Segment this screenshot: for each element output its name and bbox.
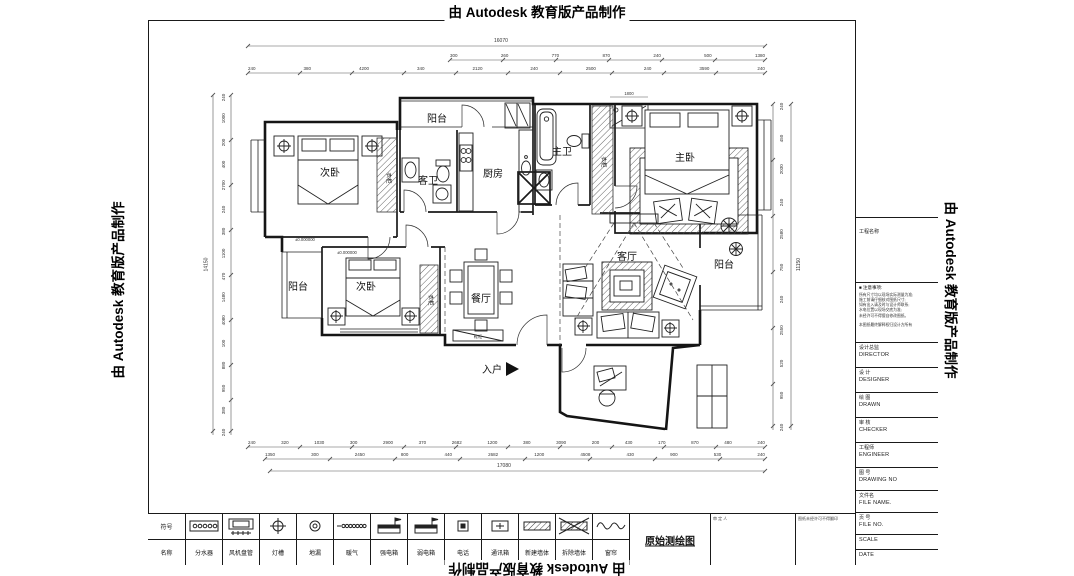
dim-value: 2682 [488,453,498,458]
coffee-table-icon [614,276,640,296]
dim-value: 1200 [534,453,544,458]
title-row-file-name: 文件名FILE NAME. [856,491,938,513]
legend-item: 窗帘 [593,514,630,565]
footer-note: 图纸未经许可不得翻印 [798,516,838,522]
dim-value: 240 [780,424,785,432]
dim-value: 3590 [699,67,709,72]
new-wall-icon [519,514,555,540]
room-label-kitchen: 厨房 [483,167,503,180]
dim-value: 770 [552,54,560,59]
shaft-cross-icon [518,172,550,204]
desk-icon [594,366,626,390]
notes-lines: 所有尺寸均以现场实际测量为准;施工前请仔细核对图纸尺寸;如有出入请及时与设计师联… [859,293,935,319]
dim-value: 240 [653,54,661,59]
outdoor-cabinet-icon [697,365,727,428]
bench-stool-icon [689,198,718,223]
dim-value: 450 [780,134,785,142]
project-name-cell: 工程名称 [856,218,938,283]
dim-value: 4080 [222,317,227,325]
note-line: 未经许可不得擅自修改图纸。 [859,314,935,319]
room-label-bedroom-top: 次卧 [320,166,340,179]
dim-value: 2900 [383,441,393,446]
power-box-icon [371,514,407,540]
wardrobe-label: 衣柜 [385,172,393,184]
autodesk-stamp-top: 由 Autodesk 教育版产品制作 [444,1,629,21]
dim-value: 880 [222,362,227,370]
room-label-balcony-top: 阳台 [427,112,447,125]
legend-item: 分水器 [186,514,223,565]
title-row-designer: 设 计DESIGNER [856,368,938,393]
dim-value: 2550 [780,327,785,335]
legend-item: 风机盘管 [223,514,260,565]
dim-value: 380 [523,441,531,446]
lamp-trough-icon [260,514,296,540]
footer-note-cell: 图纸未经许可不得翻印 [796,514,855,565]
dim-value: 320 [281,441,289,446]
room-label-balcony-left: 阳台 [288,280,308,293]
room-label-guest-bath: 客卫 [418,174,438,187]
autodesk-stamp-left: 由 Autodesk 教育版产品制作 [107,197,127,382]
dim-value: 1030 [314,441,324,446]
approver-cell: 审 定 人 [711,514,796,565]
nightstand-icon [402,308,419,325]
toilet-icon [567,134,589,148]
dim-value: 1000 [222,116,227,124]
dim-value: 1200 [487,441,497,446]
dim-value: 2682 [452,441,462,446]
legend-header-symbol: 符号 [148,514,185,540]
notes-footer: 本图纸最终解释权归设计方所有 [859,323,935,328]
dim-value: 1380 [755,54,765,59]
legend-item: 弱电箱 [408,514,445,565]
fridge-icon [505,103,530,128]
sofa-icon [597,312,659,338]
dim-value: 240 [780,102,785,110]
nightstand-icon [274,136,294,156]
legend-item: 电话 [445,514,482,565]
dim-value: 340 [417,67,425,72]
dim-row-bottom-1: 2403201030300290037026821200380309020043… [248,441,765,446]
dining-table-icon [450,249,512,331]
title-row-engineer: 工程师ENGINEER [856,443,938,468]
nightstand-icon [622,106,642,126]
radiator-icon [334,514,370,540]
dim-value: 3090 [556,441,566,446]
sheet-title-cell: 原始测绘图 [630,514,711,565]
dim-value: 4508 [580,453,590,458]
legend-item: 暖气 [334,514,371,565]
dim-value: 1480 [222,294,227,302]
room-label-entry: 入户 [482,363,502,376]
dim-row-top-3: 2403804200340212024025002403590240 [248,67,765,72]
dim-value: 240 [248,441,256,446]
manifold-icon [186,514,222,540]
dim-row-top-2: 3002607708702405001380 [450,54,765,59]
legend-item: 地漏 [297,514,334,565]
dim-value: 240 [780,199,785,207]
elevation-mark: ±0.000000 [337,250,357,255]
sofa-icon [563,264,593,316]
wardrobe-label: 衣柜 [427,294,435,306]
dim-value: 240 [780,295,785,303]
dim-value: 2580 [780,231,785,239]
bed-icon [645,110,729,194]
curtain-icon [593,514,629,540]
washing-machine-icon [433,185,451,203]
title-row-date: DATE [856,550,938,565]
title-row-drawing-no: 图 号DRAWING NO [856,468,938,491]
dim-value: 170 [658,441,666,446]
nightstand-icon [328,308,345,325]
dim-value: 300 [350,441,358,446]
dim-value: 240 [222,429,227,437]
floor-drain-icon [297,514,333,540]
dim-value: 370 [419,441,427,446]
drawing-sheet: 由 Autodesk 教育版产品制作 由 Autodesk 教育版产品制作 由 … [0,0,1074,576]
legend-header-name: 名称 [148,540,185,565]
title-row-scale: SCALE [856,535,938,550]
dim-value: 380 [222,227,227,235]
dim-value: 240 [222,205,227,213]
armchair-icon [653,265,697,309]
title-row-checker: 审 核CHECKER [856,418,938,443]
dim-value: 470 [222,272,227,280]
dim-value: 440 [445,453,453,458]
room-label-bedroom-bottom: 次卧 [356,280,376,293]
dim-value: 300 [450,54,458,59]
toilet-icon [436,160,450,182]
dim-value: 2500 [586,67,596,72]
dim-value: 2120 [472,67,482,72]
legend-header: 符号 名称 [148,514,186,565]
legend-strip: 符号 名称 分水器 风机盘管 [148,513,855,565]
dim-value: 2030 [780,167,785,175]
dim-value: 900 [670,453,678,458]
wardrobe-label: 衣柜 [600,156,608,168]
chair-icon [599,390,615,406]
dim-value: 240 [757,67,765,72]
room-label-dining: 餐厅 [471,292,491,305]
title-block: 工程名称 ■ 注意事项: 所有尺寸均以现场实际测量为准;施工前请仔细核对图纸尺寸… [855,20,938,565]
legend-item: 新建墙体 [519,514,556,565]
dim-value: 380 [303,67,311,72]
dim-value: 4200 [359,67,369,72]
side-table-icon [662,320,679,337]
wardrobes [377,106,613,333]
approver-label: 审 定 人 [713,516,727,522]
dim-value: 380 [222,406,227,414]
dim-value: 100 [222,339,227,347]
dim-value: 240 [222,93,227,101]
dim-value: 870 [691,441,699,446]
shower-dim-label: 1800 [624,91,634,96]
title-row-drawn: 绘 图DRAWN [856,393,938,418]
dashed-lines [445,215,693,345]
dim-row-bottom-2: 1350300245080044026821200450843090053024… [265,453,765,458]
dim-value: 1100 [222,250,227,258]
plant-icon [729,242,743,256]
dim-value: 950 [222,384,227,392]
dim-value: 200 [222,138,227,146]
room-label-living: 客厅 [617,250,637,263]
demolish-wall-icon [556,514,592,540]
dim-value: 800 [401,453,409,458]
dim-value: 950 [780,392,785,400]
legend-item: 强电箱 [371,514,408,565]
dim-col-right: 240450203024025807502402550520950240 [778,104,786,430]
dim-value: 2450 [355,453,365,458]
title-row-file-no: 页 号FILE NO. [856,513,938,535]
fan-coil-icon [223,514,259,540]
notes-header: ■ 注意事项: [859,285,935,291]
room-label-master-bedroom: 主卧 [675,151,695,164]
dim-value: 2700 [222,183,227,191]
legend-item: 通讯箱 [482,514,519,565]
room-label-master-bath: 主卫 [552,146,572,158]
legend-item: 灯槽 [260,514,297,565]
legend-item: 拆除墙体 [556,514,593,565]
dim-value: 200 [592,441,600,446]
dim-bottom-overall: 17080 [497,464,511,469]
dim-value: 1350 [265,453,275,458]
dim-value: 870 [602,54,610,59]
notes-cell: ■ 注意事项: 所有尺寸均以现场实际测量为准;施工前请仔细核对图纸尺寸;如有出入… [856,283,938,343]
project-name-label: 工程名称 [859,229,879,235]
dim-left-overall: 14150 [204,258,209,272]
dim-col-left: 2401000200400270024038011004701480408010… [220,95,228,435]
dim-value: 750 [780,263,785,271]
dim-value: 430 [625,441,633,446]
sheet-title: 原始测绘图 [645,532,695,547]
dim-value: 530 [714,453,722,458]
sink-icon [402,158,419,182]
dim-value: 500 [704,54,712,59]
dim-value: 240 [644,67,652,72]
side-table-icon [575,318,592,335]
plant-icon [721,218,737,234]
shoe-cabinet-label: 鞋柜 [474,333,482,340]
furniture [274,103,752,428]
room-label-balcony-right: 阳台 [714,258,734,271]
autodesk-stamp-bottom: 由 Autodesk 教育版产品制作 [444,560,629,576]
title-row-director: 设计总监DIRECTOR [856,343,938,368]
dim-value: 300 [311,453,319,458]
comm-box-icon [482,514,518,540]
elevation-mark: ±0.000000 [295,237,315,242]
weak-current-box-icon [408,514,444,540]
autodesk-stamp-right: 由 Autodesk 教育版产品制作 [942,197,962,382]
dim-value: 430 [627,453,635,458]
dim-right-overall: 11150 [797,258,802,271]
dim-value: 240 [757,453,765,458]
phone-icon [445,514,481,540]
dim-value: 240 [248,67,256,72]
dim-top-overall: 16070 [494,39,508,44]
dim-value: 260 [501,54,509,59]
entry-arrow-icon [506,362,519,376]
nightstand-icon [732,106,752,126]
dimension-lines [211,44,793,473]
dim-value: 480 [724,441,732,446]
dim-value: 400 [222,160,227,168]
dim-value: 240 [530,67,538,72]
title-block-logo-area [856,20,938,218]
dim-value: 240 [757,441,765,446]
dim-value: 520 [780,359,785,367]
